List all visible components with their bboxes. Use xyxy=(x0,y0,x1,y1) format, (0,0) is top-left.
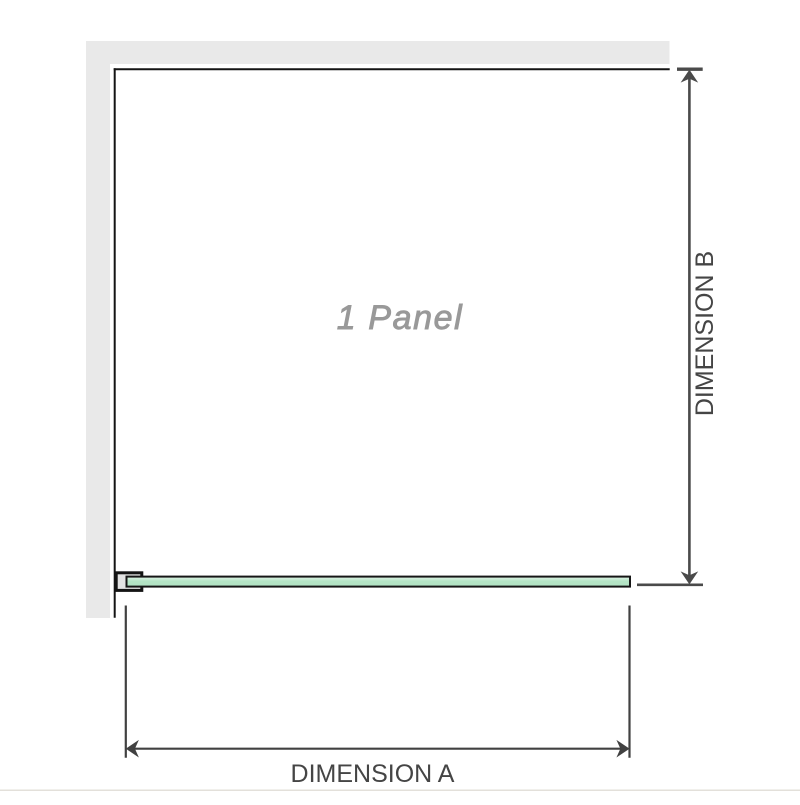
svg-text:DIMENSION A: DIMENSION A xyxy=(291,760,455,788)
svg-text:1 Panel: 1 Panel xyxy=(337,299,464,337)
svg-text:DIMENSION B: DIMENSION B xyxy=(691,251,719,416)
